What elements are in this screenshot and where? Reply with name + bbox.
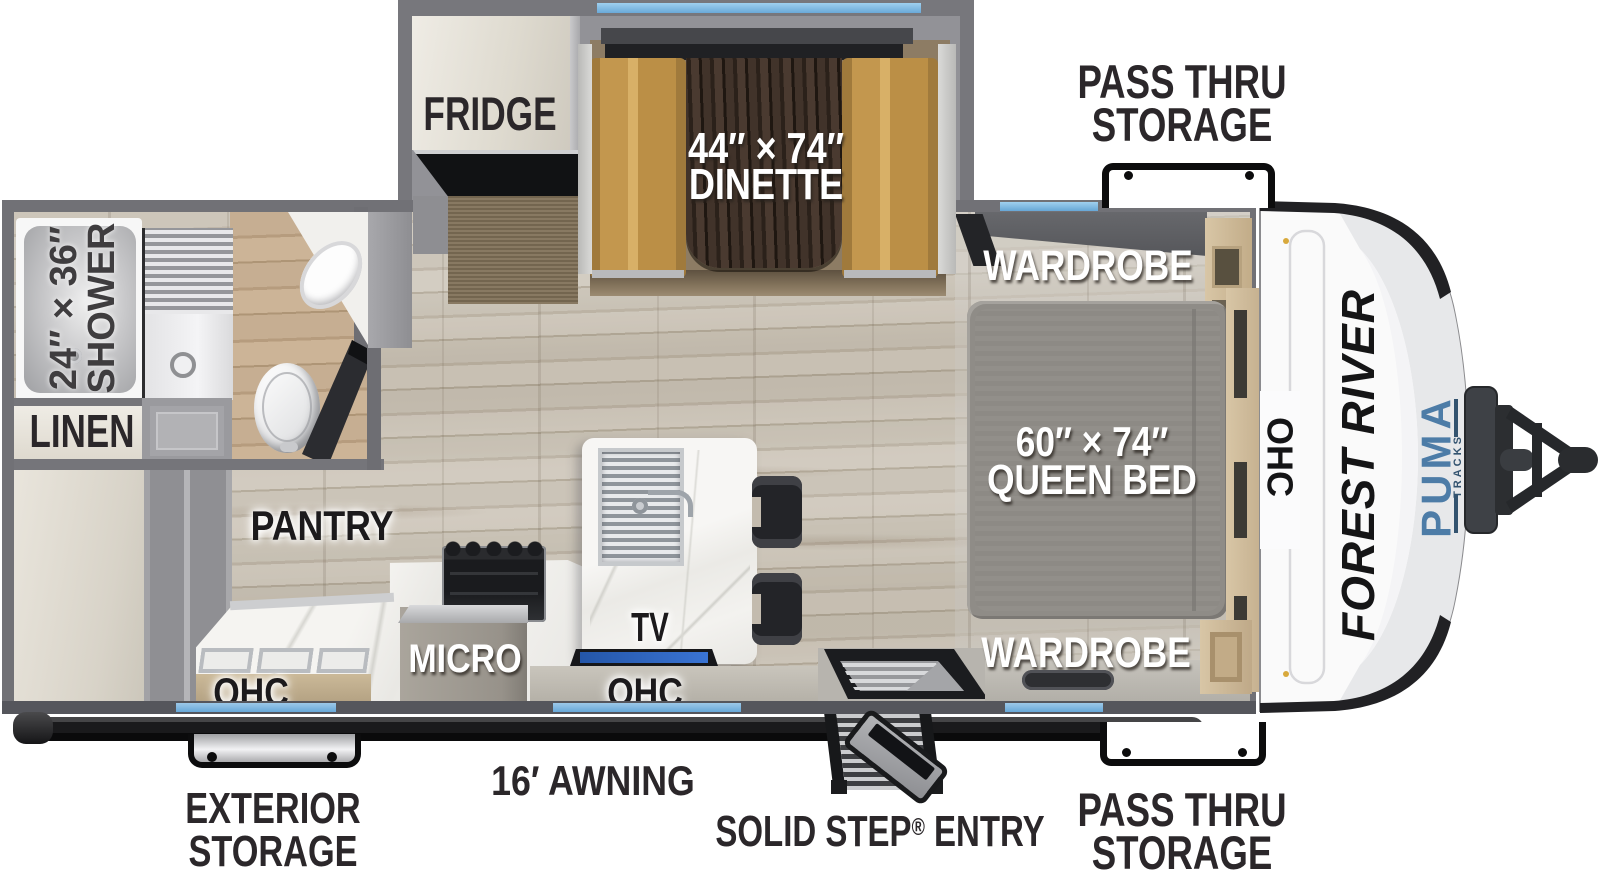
svg-text:OHC: OHC <box>1260 417 1301 497</box>
svg-text:FOREST RIVER: FOREST RIVER <box>1332 289 1384 641</box>
svg-text:TRACKS: TRACKS <box>1452 434 1464 498</box>
